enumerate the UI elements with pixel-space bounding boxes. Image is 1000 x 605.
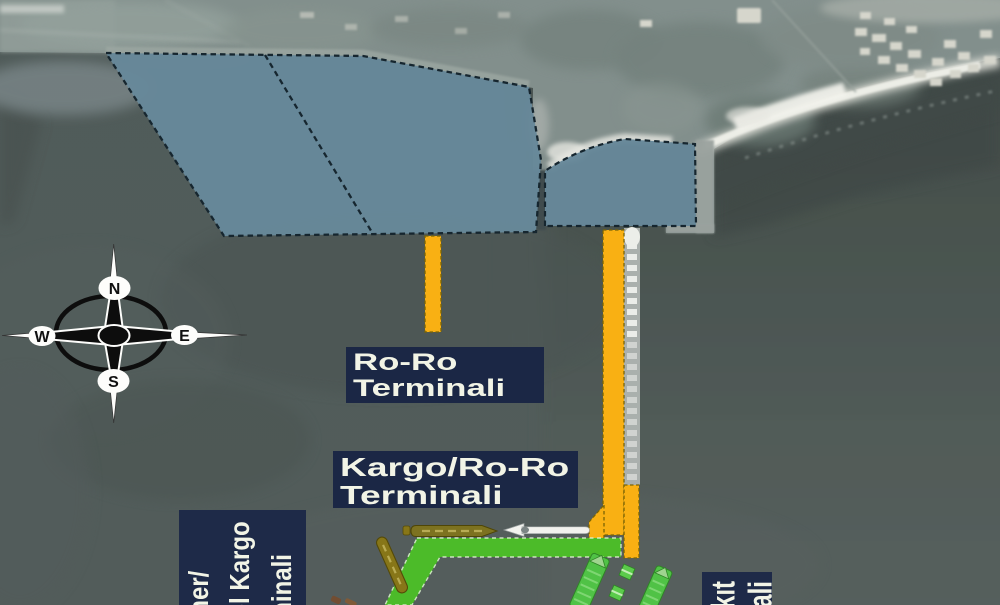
svg-text:E: E (179, 328, 190, 345)
svg-text:S: S (108, 374, 119, 391)
svg-text:N: N (109, 281, 121, 298)
svg-text:W: W (34, 329, 50, 346)
